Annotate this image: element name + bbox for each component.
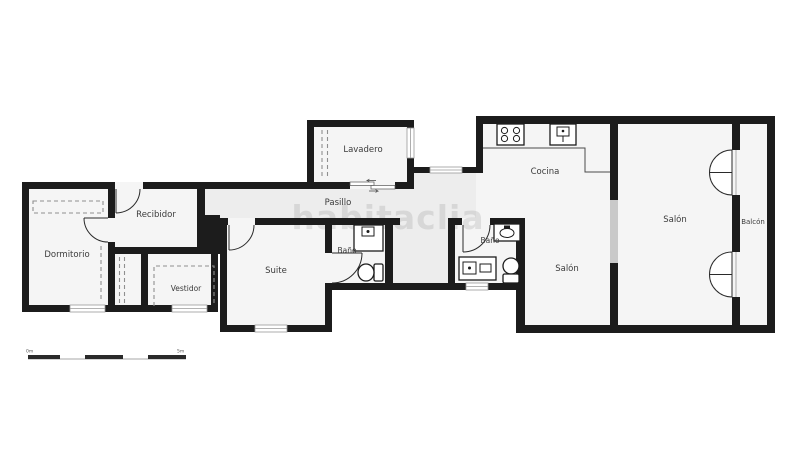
room-label-vestidor: Vestidor (171, 284, 202, 293)
window-icon (70, 305, 105, 312)
vanity-icon (459, 257, 496, 280)
room-label-cocina: Cocina (531, 167, 560, 177)
corridor-floor (115, 254, 141, 312)
room-label-bano-2: Baño (480, 236, 499, 245)
toilet-icon (358, 264, 383, 281)
room-label-suite: Suite (265, 266, 287, 276)
shower-icon (354, 225, 383, 251)
scale-end-label: 5m (177, 349, 184, 355)
window-icon (430, 167, 462, 173)
glass-partition (610, 200, 618, 263)
room-label-balcon: Balcón (741, 218, 765, 226)
window-icon (255, 325, 287, 332)
window-icon (407, 128, 414, 158)
room-label-recibidor: Recibidor (136, 210, 176, 220)
salon-comedor-floor (516, 218, 618, 333)
room-label-salon-comedor: Salón (555, 263, 579, 274)
room-label-salon: Salón (663, 214, 687, 225)
scale-start-label: 0m (26, 349, 33, 355)
room-label-pasillo: Pasillo (325, 198, 352, 208)
window-icon (172, 305, 207, 312)
room-label-bano-suite: Baño (337, 246, 356, 255)
floor-plan-canvas: habitaclia (0, 0, 800, 450)
kitchen-sink-icon (550, 124, 576, 145)
scale-bar: 0m 5m (26, 349, 186, 360)
vestidor-floor (141, 254, 218, 312)
toilet-icon (503, 258, 519, 283)
window-icon (466, 283, 488, 290)
room-label-lavadero: Lavadero (343, 145, 382, 155)
floor-plan-page: habitaclia (0, 0, 800, 450)
stove-icon (497, 124, 524, 145)
room-label-dormitorio: Dormitorio (44, 250, 89, 260)
